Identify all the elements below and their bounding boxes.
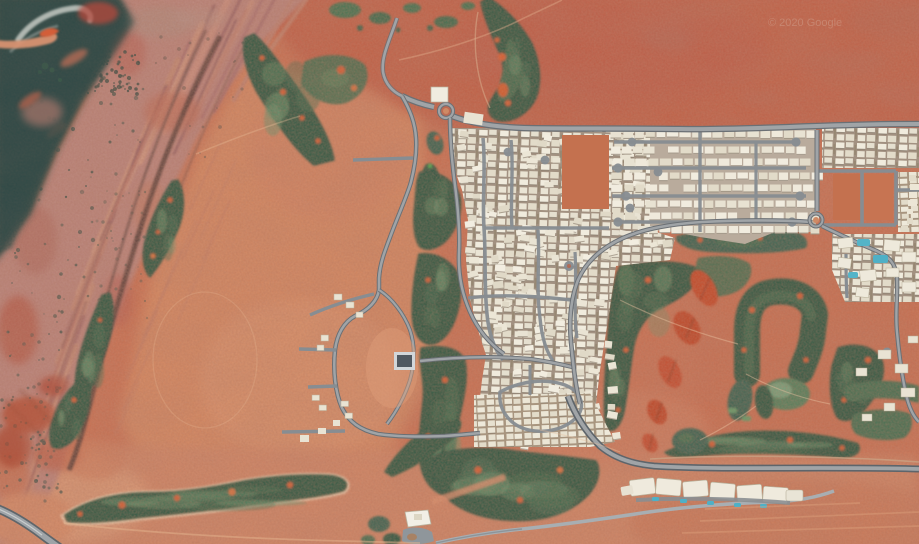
svg-text:© 2020 Google: © 2020 Google <box>768 17 842 29</box>
